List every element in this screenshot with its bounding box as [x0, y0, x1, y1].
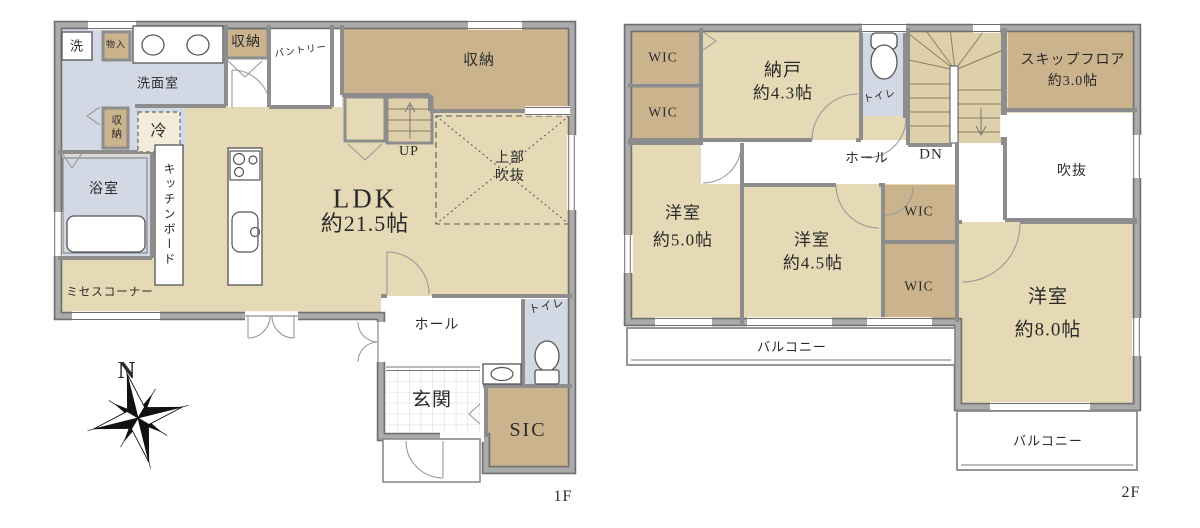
label-void-upper-2: 吹抜	[495, 170, 525, 184]
label-ldk: LDK	[333, 186, 398, 213]
label-bathroom: 浴室	[89, 183, 119, 197]
label-storage-big: 収納	[463, 54, 495, 69]
hand-basin-icon	[483, 364, 521, 384]
toilet1-icon	[535, 341, 559, 384]
label-skip-floor: スキップフロア	[1021, 54, 1126, 68]
label-wic-e-lower: WIC	[904, 279, 933, 293]
label-washroom: 洗面室	[137, 77, 179, 90]
label-bedroom-e-size: 約8.0帖	[1015, 321, 1082, 340]
ldk-closet-box	[345, 97, 385, 141]
label-storeroom: 納戸	[764, 61, 802, 79]
room-skipfloor-floor	[1008, 28, 1137, 110]
label-bedroom-w: 洋室	[665, 205, 701, 222]
label-wic-nw-lower: WIC	[648, 105, 677, 119]
label-compass-north: N	[118, 359, 136, 383]
storage-big-left	[344, 25, 430, 95]
label-ldk-size: 約21.5帖	[321, 213, 410, 235]
label-balcony-east: バルコニー	[1013, 435, 1083, 448]
label-laundry: 洗	[70, 40, 84, 53]
floorplan-drawing	[0, 0, 1200, 528]
porch	[383, 439, 480, 482]
compass-rose	[75, 355, 201, 481]
label-skip-floor-size: 約3.0帖	[1048, 75, 1099, 89]
label-hall1: ホール	[415, 319, 460, 333]
label-floor2: 2F	[1122, 485, 1141, 501]
storage-big-right	[430, 25, 572, 111]
label-bedroom-e: 洋室	[1028, 288, 1068, 307]
label-bedroom-c: 洋室	[794, 232, 830, 249]
label-balcony-west: バルコニー	[757, 341, 827, 354]
label-floor1: 1F	[554, 489, 573, 505]
label-storage-cabinet: 収納	[231, 36, 261, 50]
room-pantry-floor	[270, 25, 332, 107]
label-stairs-down: DN	[919, 148, 943, 163]
label-small-closet: 物入	[106, 41, 126, 50]
label-bedroom-w-size: 約5.0帖	[653, 232, 713, 249]
floorplan-canvas: 洗 物入 洗面室 収納 パントリー 収納 冷 浴室 キッチンボード ミセスコーナ…	[0, 0, 1200, 528]
label-wic-e-upper: WIC	[904, 204, 933, 218]
label-kitchen-board: キッチンボード	[163, 163, 175, 268]
toilet2-icon	[871, 33, 897, 79]
label-void2: 吹抜	[1057, 165, 1087, 179]
label-fridge: 冷	[150, 124, 167, 140]
label-washroom-storage: 収納	[110, 115, 121, 142]
label-hall2: ホール	[845, 151, 889, 165]
bathtub-icon	[67, 216, 145, 252]
sink-bowl-right-icon	[187, 35, 209, 55]
label-void-upper-1: 上部	[495, 152, 525, 166]
passage-floor	[228, 58, 269, 107]
label-mrs-corner: ミセスコーナー	[66, 287, 154, 299]
label-wic-nw-upper: WIC	[648, 50, 677, 64]
room-bedroom8-floor	[958, 222, 1137, 407]
label-bedroom-c-size: 約4.5帖	[783, 255, 843, 272]
hall2-landing	[955, 184, 1005, 222]
label-sic: SIC	[509, 420, 546, 440]
label-stairs-up: UP	[399, 145, 419, 159]
sink-bowl-left-icon	[142, 35, 164, 55]
label-entrance: 玄関	[412, 391, 452, 410]
label-storeroom-size: 約4.3帖	[753, 85, 813, 102]
